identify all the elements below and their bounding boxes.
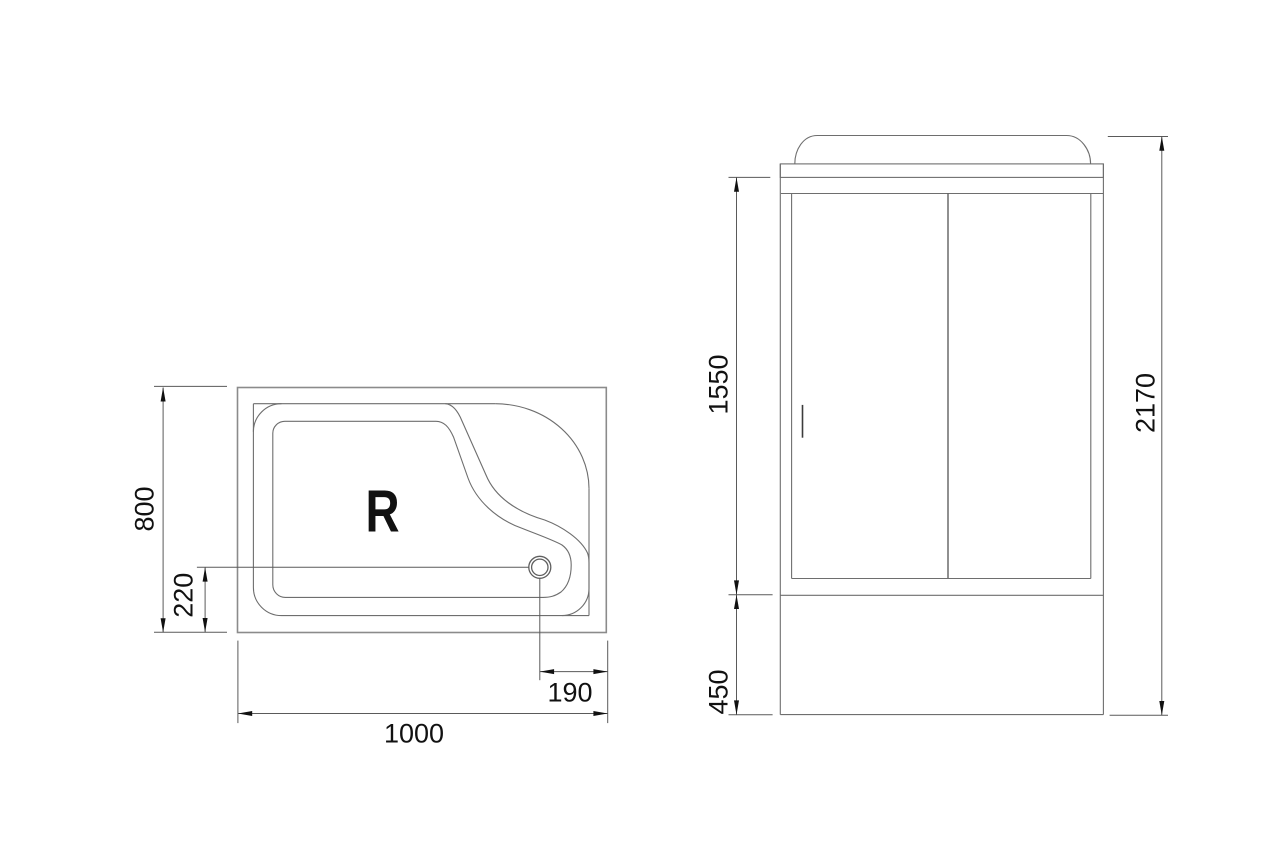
svg-text:1000: 1000 (384, 719, 444, 749)
svg-text:1550: 1550 (704, 354, 734, 414)
svg-text:2170: 2170 (1131, 373, 1161, 433)
svg-text:190: 190 (547, 678, 592, 708)
svg-text:800: 800 (129, 486, 159, 531)
svg-text:220: 220 (169, 573, 199, 618)
svg-text:R: R (366, 480, 400, 545)
svg-text:450: 450 (704, 669, 734, 714)
